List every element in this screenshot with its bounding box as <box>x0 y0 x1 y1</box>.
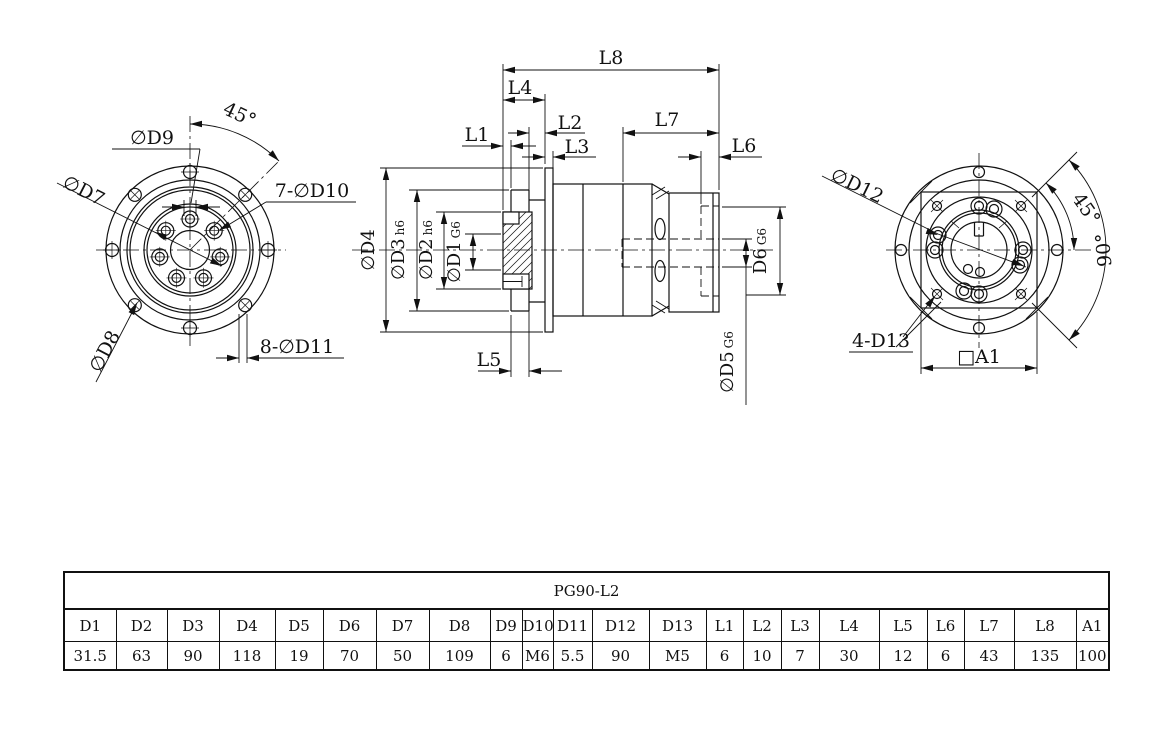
table-value-cell: 118 <box>219 642 275 671</box>
table-title-row: PG90-L2 <box>64 572 1109 609</box>
table-header-cell: L8 <box>1014 609 1076 642</box>
table-value-cell: 43 <box>964 642 1014 671</box>
side-l8-label: L8 <box>599 47 624 69</box>
table-value-cell: 19 <box>275 642 323 671</box>
table-value-row: 31.5 63 90 118 19 70 50 109 6 M6 5.5 90 … <box>64 642 1109 671</box>
side-d3-label: ∅D3h6 <box>388 220 409 280</box>
table-header-cell: L3 <box>781 609 819 642</box>
table-header-cell: L6 <box>927 609 964 642</box>
side-l4-label: L4 <box>508 77 533 99</box>
side-l3-label: L3 <box>565 136 590 158</box>
table-value-cell: M6 <box>522 642 553 671</box>
table-value-cell: 100 <box>1076 642 1109 671</box>
table-header-cell: D12 <box>592 609 649 642</box>
table-value-cell: 135 <box>1014 642 1076 671</box>
front-d11-label: 8-∅D11 <box>260 336 334 358</box>
table-value-cell: 50 <box>376 642 429 671</box>
table-header-cell: D8 <box>429 609 490 642</box>
table-header-cell: D10 <box>522 609 553 642</box>
front-d8-label: ∅D8 <box>85 327 125 376</box>
table-header-row: D1 D2 D3 D4 D5 D6 D7 D8 D9 D10 D11 D12 D… <box>64 609 1109 642</box>
side-view-labels: L8 L4 L1 L2 L3 L7 L6 L5 ∅D4 ∅D3h6 ∅D2h6 … <box>358 47 771 393</box>
table-header-cell: L1 <box>706 609 743 642</box>
table-value-cell: 31.5 <box>64 642 116 671</box>
table-header-cell: L4 <box>819 609 879 642</box>
table-header-cell: D7 <box>376 609 429 642</box>
side-l2-label: L2 <box>558 112 583 134</box>
table-value-cell: 6 <box>490 642 522 671</box>
table-value-cell: 10 <box>743 642 781 671</box>
rear-d12-label: ∅D12 <box>827 164 887 208</box>
table-value-cell: 6 <box>706 642 743 671</box>
table-header-cell: D4 <box>219 609 275 642</box>
table-header-cell: L7 <box>964 609 1014 642</box>
front-seven-hole-pattern <box>150 209 230 288</box>
table-header-cell: L2 <box>743 609 781 642</box>
side-l5-label: L5 <box>477 349 502 371</box>
table-value-cell: 30 <box>819 642 879 671</box>
drawing-canvas: ∅D9 45° ∅D7 7-∅D10 ∅D8 8-∅D11 <box>0 0 1170 565</box>
table-header-cell: D6 <box>323 609 376 642</box>
table-header-cell: D5 <box>275 609 323 642</box>
side-d6-label: D6G6 <box>750 228 771 274</box>
table-value-cell: 90 <box>167 642 219 671</box>
table-value-cell: 5.5 <box>553 642 592 671</box>
side-d1-label: ∅D1G6 <box>444 221 465 283</box>
table-header-cell: D13 <box>649 609 706 642</box>
rear-45deg-label: 45° <box>1067 189 1104 229</box>
rear-d13-label: 4-D13 <box>852 330 910 352</box>
side-d4-label: ∅D4 <box>358 229 379 271</box>
rear-90deg-label: 90° <box>1092 232 1117 267</box>
table-value-cell: 6 <box>927 642 964 671</box>
front-d10-label: 7-∅D10 <box>275 180 349 202</box>
side-d5-label: ∅D5G6 <box>717 331 738 393</box>
table-value-cell: 7 <box>781 642 819 671</box>
table-title: PG90-L2 <box>64 572 1109 609</box>
gearbox-dimension-drawing: ∅D9 45° ∅D7 7-∅D10 ∅D8 8-∅D11 <box>0 0 1170 747</box>
table-header-cell: D3 <box>167 609 219 642</box>
side-l6-label: L6 <box>732 135 757 157</box>
side-l7-label: L7 <box>655 109 680 131</box>
table-header-cell: L5 <box>879 609 927 642</box>
side-d2-label: ∅D2h6 <box>416 220 437 280</box>
table-header-cell: D1 <box>64 609 116 642</box>
table-header-cell: D2 <box>116 609 167 642</box>
front-d9-label: ∅D9 <box>130 127 174 149</box>
front-d7-label: ∅D7 <box>59 171 108 211</box>
side-input-sleeve <box>511 190 529 311</box>
table-value-cell: 12 <box>879 642 927 671</box>
table-header-cell: D11 <box>553 609 592 642</box>
table-value-cell: 70 <box>323 642 376 671</box>
side-rear-adapter <box>669 193 719 312</box>
table-value-cell: 90 <box>592 642 649 671</box>
table-value-cell: 109 <box>429 642 490 671</box>
table-value-cell: M5 <box>649 642 706 671</box>
table-value-cell: 63 <box>116 642 167 671</box>
front-45deg-label: 45° <box>220 98 260 132</box>
side-hidden-bores <box>622 206 719 296</box>
rear-a1-label: □A1 <box>957 346 1001 368</box>
side-l1-label: L1 <box>465 124 490 146</box>
spec-table: PG90-L2 D1 D2 D3 D4 D5 D6 D7 D8 D9 D10 D… <box>63 571 1110 671</box>
table-header-cell: A1 <box>1076 609 1109 642</box>
table-header-cell: D9 <box>490 609 522 642</box>
